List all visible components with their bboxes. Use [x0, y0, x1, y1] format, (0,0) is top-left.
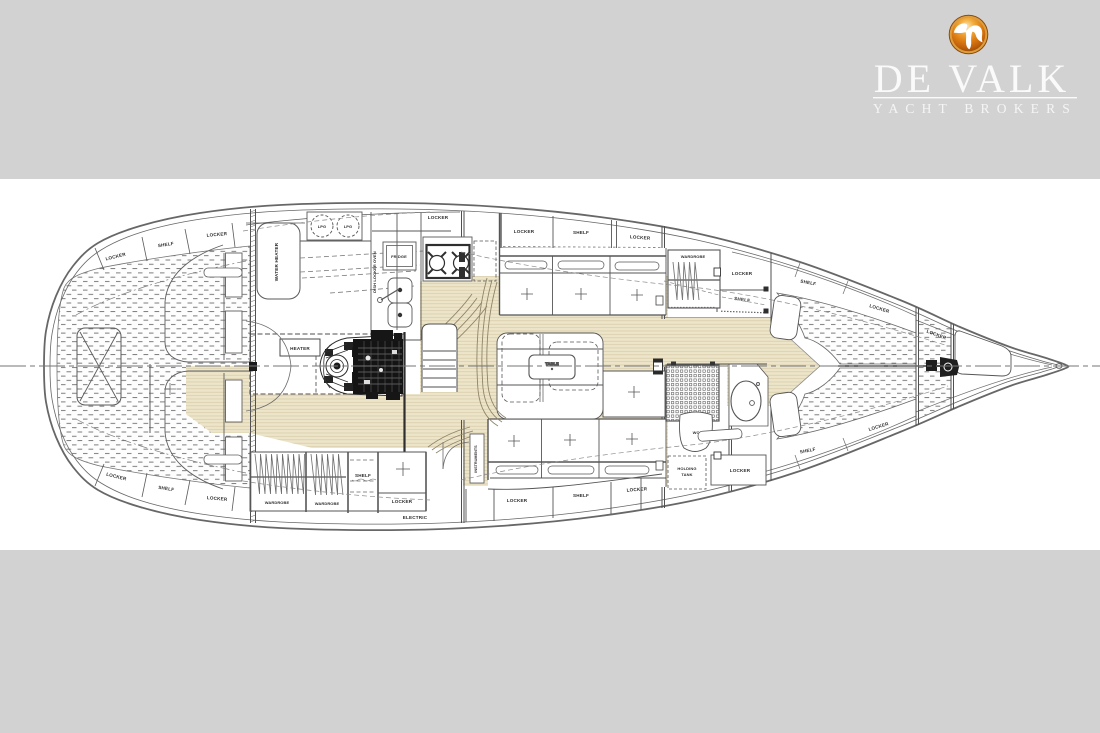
svg-text:SHELF: SHELF: [355, 473, 371, 478]
svg-text:WARDROBE: WARDROBE: [265, 500, 290, 505]
svg-text:TABLE: TABLE: [545, 361, 559, 366]
svg-text:DISH LOCKER OVEN: DISH LOCKER OVEN: [372, 251, 377, 293]
svg-text:LOCKER: LOCKER: [392, 499, 413, 504]
svg-text:LPG: LPG: [344, 224, 353, 229]
svg-text:WATER HEATER: WATER HEATER: [274, 242, 279, 281]
svg-text:HOLDING: HOLDING: [677, 466, 696, 471]
svg-text:WARDROBE: WARDROBE: [681, 254, 706, 259]
svg-text:INSTRUMENTS: INSTRUMENTS: [474, 445, 478, 473]
svg-text:LPG: LPG: [318, 224, 327, 229]
svg-text:WARDROBE: WARDROBE: [315, 501, 340, 506]
svg-text:TANK: TANK: [681, 472, 692, 477]
svg-text:LOCKER: LOCKER: [730, 468, 751, 473]
svg-text:LOCKER: LOCKER: [428, 215, 449, 220]
svg-text:LOCKER: LOCKER: [507, 498, 528, 503]
svg-text:LOCKER: LOCKER: [732, 271, 753, 276]
svg-text:LOCKER: LOCKER: [514, 229, 535, 234]
svg-text:SHELF: SHELF: [573, 493, 589, 498]
svg-text:DE VALK: DE VALK: [874, 56, 1071, 101]
svg-text:ELECTRIC: ELECTRIC: [403, 515, 428, 520]
svg-text:HEATER: HEATER: [290, 346, 310, 351]
svg-text:FRIDGE: FRIDGE: [391, 254, 407, 259]
svg-text:SHELF: SHELF: [573, 230, 589, 235]
svg-text:YACHT BROKERS: YACHT BROKERS: [873, 101, 1077, 116]
